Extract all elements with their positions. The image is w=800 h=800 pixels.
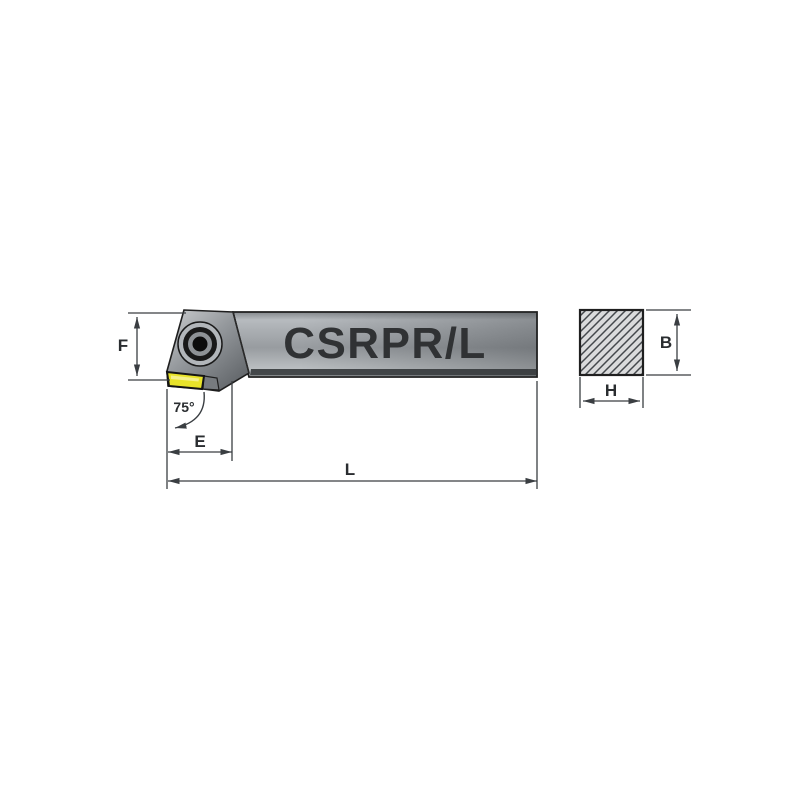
part-label: CSRPR/L <box>283 319 487 368</box>
clamp-center-hole <box>193 337 208 352</box>
shank-bottom-edge <box>250 369 537 376</box>
cross-section-square <box>580 310 643 375</box>
label-f: F <box>118 336 128 355</box>
label-b: B <box>660 333 672 352</box>
head-tip-wedge <box>203 376 219 390</box>
label-angle: 75° <box>173 399 194 415</box>
section-view: B H <box>580 310 691 408</box>
main-view: CSRPR/L F 75° E L <box>118 310 537 489</box>
drawing-canvas: CSRPR/L F 75° E L B <box>0 0 800 800</box>
technical-drawing: CSRPR/L F 75° E L B <box>0 0 800 800</box>
clamp-screw <box>178 322 222 366</box>
label-h: H <box>605 381 617 400</box>
label-l: L <box>345 460 355 479</box>
label-e: E <box>194 432 205 451</box>
